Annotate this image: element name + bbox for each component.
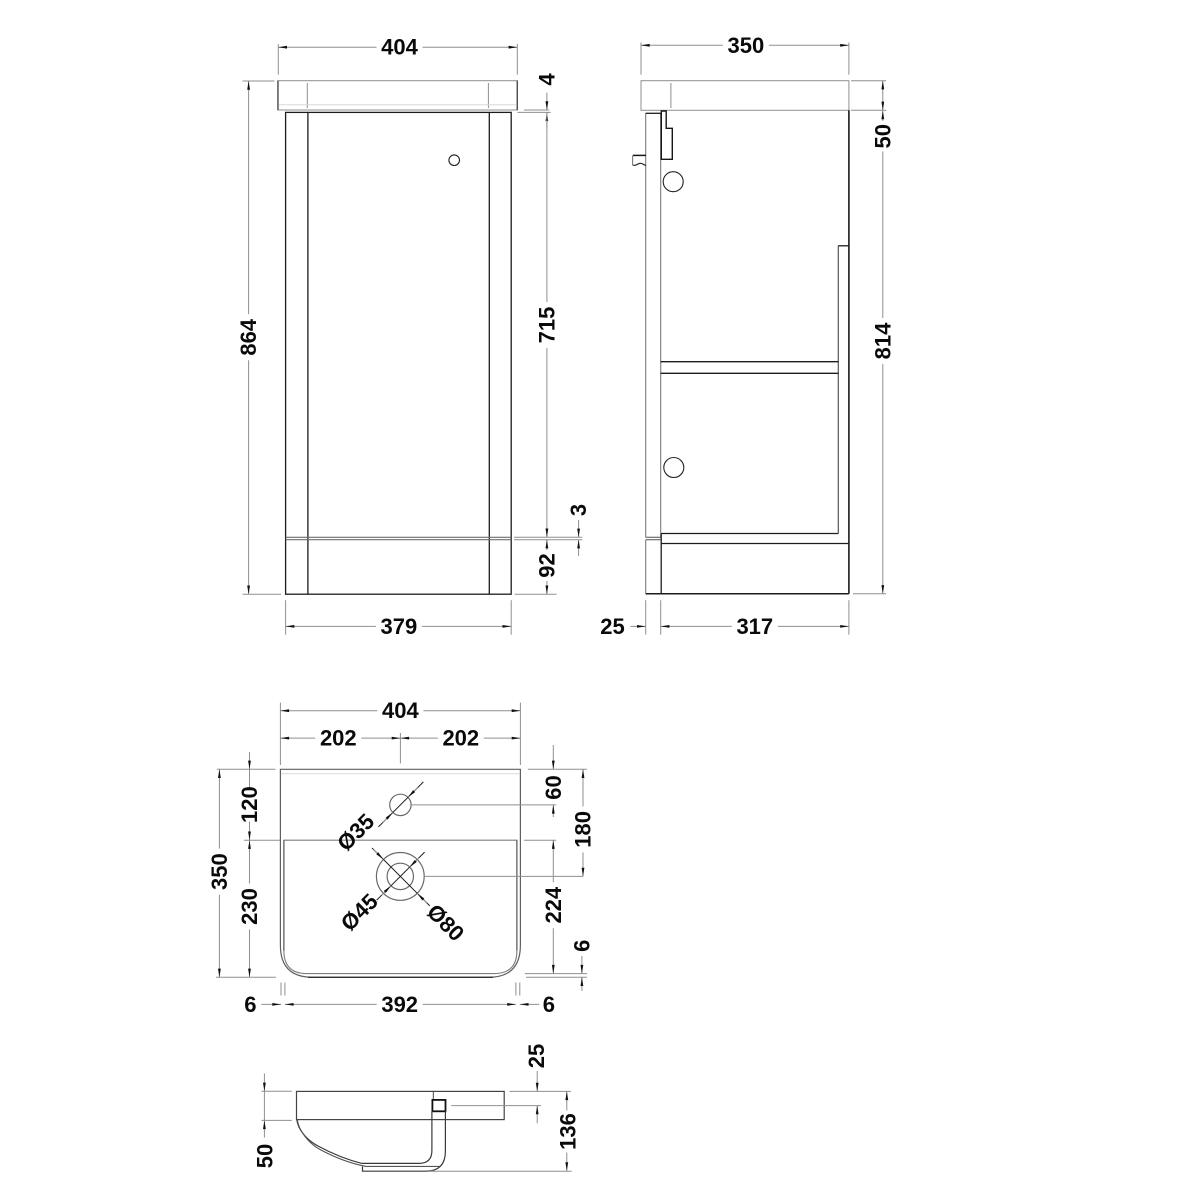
svg-text:3: 3 (566, 504, 591, 516)
svg-text:202: 202 (320, 726, 357, 751)
svg-text:202: 202 (442, 726, 479, 751)
svg-text:379: 379 (381, 614, 418, 639)
svg-text:50: 50 (252, 1144, 277, 1168)
svg-text:350: 350 (728, 33, 765, 58)
svg-text:120: 120 (237, 786, 262, 823)
svg-text:6: 6 (543, 992, 555, 1017)
svg-text:4: 4 (534, 73, 559, 86)
svg-text:350: 350 (207, 853, 232, 890)
svg-text:136: 136 (555, 1113, 580, 1150)
svg-text:92: 92 (534, 553, 559, 577)
svg-text:864: 864 (236, 318, 261, 355)
svg-text:230: 230 (237, 888, 262, 925)
svg-text:Ø80: Ø80 (422, 899, 469, 946)
svg-text:6: 6 (569, 940, 594, 952)
svg-text:814: 814 (870, 322, 895, 359)
svg-text:6: 6 (244, 992, 256, 1017)
svg-text:60: 60 (541, 775, 566, 799)
svg-text:180: 180 (571, 811, 596, 848)
svg-text:392: 392 (381, 992, 418, 1017)
svg-text:50: 50 (870, 124, 895, 148)
svg-text:404: 404 (382, 698, 419, 723)
svg-text:404: 404 (381, 35, 418, 60)
svg-text:25: 25 (600, 614, 624, 639)
svg-text:715: 715 (534, 307, 559, 344)
svg-text:25: 25 (524, 1044, 549, 1068)
svg-text:Ø45: Ø45 (336, 889, 383, 936)
svg-text:224: 224 (541, 886, 566, 923)
svg-text:317: 317 (736, 614, 773, 639)
